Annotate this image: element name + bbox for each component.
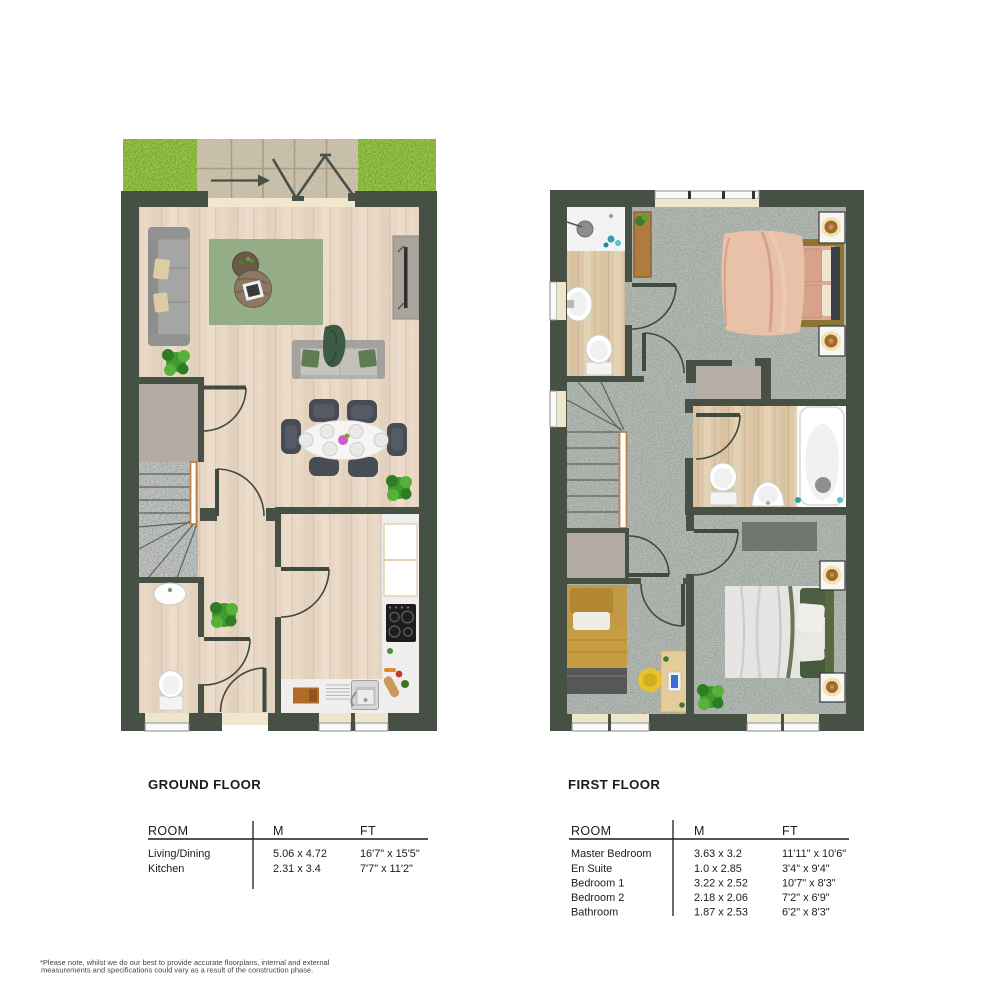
svg-text:2.31 x 3.4: 2.31 x 3.4: [273, 863, 321, 875]
svg-text:1.87 x 2.53: 1.87 x 2.53: [694, 907, 748, 919]
svg-text:3.63 x 3.2: 3.63 x 3.2: [694, 848, 742, 860]
svg-text:6'2" x 8'3": 6'2" x 8'3": [782, 907, 830, 919]
svg-text:2.18 x 2.06: 2.18 x 2.06: [694, 892, 748, 904]
svg-text:FT: FT: [360, 824, 376, 838]
svg-text:3'4" x 9'4": 3'4" x 9'4": [782, 863, 830, 875]
svg-text:M: M: [694, 824, 705, 838]
svg-text:16'7" x 15'5": 16'7" x 15'5": [360, 848, 420, 860]
svg-text:Bathroom: Bathroom: [571, 907, 618, 919]
svg-text:ROOM: ROOM: [571, 824, 612, 838]
svg-text:11'11" x 10'6": 11'11" x 10'6": [782, 848, 846, 860]
svg-text:Bedroom 1: Bedroom 1: [571, 878, 624, 890]
svg-text:7'2" x 6'9": 7'2" x 6'9": [782, 892, 830, 904]
svg-text:ROOM: ROOM: [148, 824, 189, 838]
svg-text:5.06 x 4.72: 5.06 x 4.72: [273, 848, 327, 860]
svg-text:Living/Dining: Living/Dining: [148, 848, 210, 860]
svg-text:7'7" x 11'2": 7'7" x 11'2": [360, 863, 413, 875]
svg-text:M: M: [273, 824, 284, 838]
svg-text:FIRST FLOOR: FIRST FLOOR: [568, 777, 660, 792]
svg-text:Kitchen: Kitchen: [148, 863, 184, 875]
svg-text:En Suite: En Suite: [571, 863, 612, 875]
svg-text:Master Bedroom: Master Bedroom: [571, 848, 652, 860]
svg-text:10'7" x 8'3": 10'7" x 8'3": [782, 878, 836, 890]
svg-text:Bedroom 2: Bedroom 2: [571, 892, 624, 904]
svg-text:1.0 x 2.85: 1.0 x 2.85: [694, 863, 742, 875]
svg-text:GROUND FLOOR: GROUND FLOOR: [148, 777, 261, 792]
svg-text:FT: FT: [782, 824, 798, 838]
svg-text:measurements and specification: measurements and specifications could va…: [41, 966, 313, 975]
svg-text:3.22 x 2.52: 3.22 x 2.52: [694, 878, 748, 890]
